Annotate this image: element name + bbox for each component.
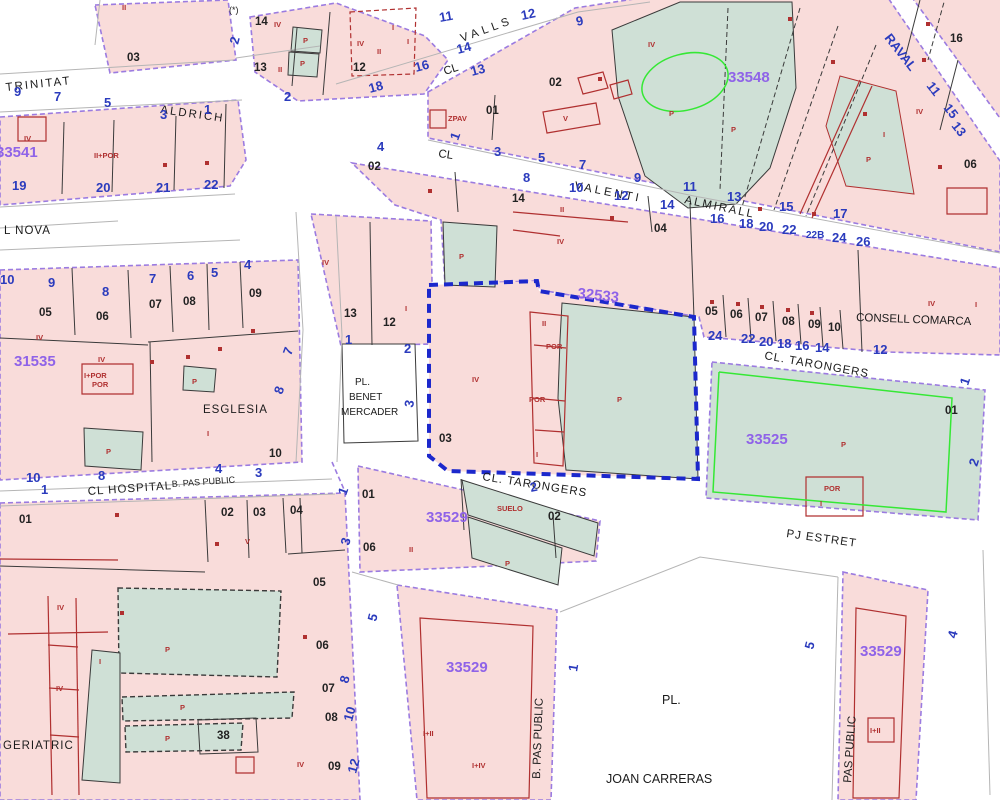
plaza-label: MERCADER	[341, 407, 398, 418]
building-code: POR	[546, 342, 563, 351]
house-number: 12	[873, 342, 887, 357]
house-number: 10	[569, 180, 583, 195]
building-code: I+POR	[84, 371, 107, 380]
house-number: 1	[204, 102, 211, 117]
building-mark	[251, 329, 255, 333]
building-code: SUELO	[497, 504, 523, 513]
house-number: 12	[614, 188, 628, 203]
block-03-trinitat[interactable]	[95, 0, 236, 73]
building-mark	[758, 207, 762, 211]
house-number: 11	[683, 179, 697, 194]
house-number: 22	[204, 177, 218, 192]
house-number: 7	[54, 89, 61, 104]
house-number: 15	[779, 199, 793, 214]
parcel-number: 07	[755, 312, 768, 324]
house-number: 1	[345, 332, 352, 347]
building-mark	[786, 308, 790, 312]
building-code: IV	[928, 299, 935, 308]
house-number: 4	[944, 628, 961, 640]
green-parcel[interactable]	[84, 428, 143, 470]
building-mark	[812, 212, 816, 216]
building-code: IV	[36, 333, 43, 342]
building-code: I+II	[423, 729, 434, 738]
house-number: 10	[0, 272, 14, 287]
parcel-number: 09	[328, 761, 341, 773]
building-mark	[736, 302, 740, 306]
parcel-number: 02	[368, 161, 381, 173]
building-code: P	[505, 559, 510, 568]
street-edge	[983, 550, 990, 795]
street-label-small: (*)	[229, 5, 239, 15]
house-number: 11	[438, 8, 454, 25]
house-number: 4	[377, 139, 385, 154]
street-edge	[352, 572, 398, 585]
green-parcel[interactable]	[183, 366, 216, 392]
house-number: 12	[520, 5, 537, 23]
building-code: II	[542, 319, 546, 328]
building-code: II	[278, 65, 282, 74]
parcel-number: 12	[383, 317, 396, 329]
house-number: 4	[215, 461, 223, 476]
parcel-number: 09	[808, 319, 821, 331]
block-number[interactable]: 33529	[446, 659, 488, 676]
building-code: IV	[56, 684, 63, 693]
parcel-number: 01	[945, 405, 958, 417]
parcel-number: 10	[269, 448, 282, 460]
building-code: POR	[92, 380, 109, 389]
building-mark	[810, 311, 814, 315]
cadastral-map: TRINITATALDRICHL NOVAVALLSCLCLVALENTIALM…	[0, 0, 1000, 800]
parcel-number: 04	[290, 505, 303, 517]
parcel-number: 02	[548, 511, 561, 523]
building-mark	[926, 22, 930, 26]
house-number: 16	[710, 211, 724, 226]
house-number: 18	[739, 216, 753, 231]
parcel-number: 04	[654, 223, 667, 235]
house-number: 17	[833, 206, 847, 221]
building-mark	[598, 77, 602, 81]
parcel-number: 01	[19, 514, 32, 526]
parcel-number: 06	[96, 311, 109, 323]
building-code: I	[405, 304, 407, 313]
house-number: 8	[98, 468, 105, 483]
house-number: 21	[156, 180, 170, 195]
house-number: 5	[538, 150, 545, 165]
house-number: 19	[12, 178, 26, 193]
house-number: 7	[579, 157, 586, 172]
building-code: I+IV	[472, 761, 486, 770]
building-code: IV	[357, 39, 364, 48]
parcel-number: 13	[254, 62, 267, 74]
house-number: 9	[14, 84, 21, 99]
house-number: 5	[801, 640, 817, 651]
building-mark	[863, 112, 867, 116]
plaza-label: PL.	[355, 377, 370, 388]
house-number: 8	[523, 170, 530, 185]
house-number: 4	[244, 257, 252, 272]
parcel-number: 16	[950, 33, 963, 45]
house-number: 22B	[806, 230, 824, 241]
building-mark	[428, 189, 432, 193]
building-code: P	[731, 125, 736, 134]
parcel-number: 02	[221, 507, 234, 519]
building-code: IV	[98, 355, 105, 364]
building-code: P	[165, 734, 170, 743]
house-number: 2	[284, 89, 291, 104]
house-number: 14	[660, 197, 675, 212]
house-number: 5	[364, 612, 380, 623]
building-mark	[788, 17, 792, 21]
building-code: IV	[322, 258, 329, 267]
building-code: P	[841, 440, 846, 449]
building-mark	[205, 161, 209, 165]
building-mark	[218, 347, 222, 351]
building-code: ZPAV	[448, 114, 467, 123]
parcel-number: 03	[127, 52, 140, 64]
street-label-small: B. PAS PUBLIC	[171, 475, 235, 489]
building-mark	[710, 300, 714, 304]
parcel-number: 03	[439, 433, 452, 445]
building-code: P	[459, 252, 464, 261]
building-code: IV	[916, 107, 923, 116]
building-code: I	[975, 300, 977, 309]
parcel-number: 07	[322, 683, 335, 695]
house-number: 2	[404, 341, 411, 356]
building-code: I	[207, 429, 209, 438]
building-code: IV	[274, 20, 281, 29]
house-number: 8	[102, 284, 109, 299]
building-code: I	[407, 37, 409, 46]
building-code: IV	[557, 237, 564, 246]
parcel-number: 38	[217, 730, 230, 742]
house-number: 1	[41, 482, 48, 497]
block-number[interactable]: 33529	[860, 643, 902, 660]
building-code: II	[560, 205, 564, 214]
house-number: 5	[104, 95, 111, 110]
building-code: I	[820, 499, 822, 508]
parcel-number: 14	[255, 16, 268, 28]
building-mark	[215, 542, 219, 546]
parcel-number: 05	[705, 306, 718, 318]
house-number: 18	[777, 336, 791, 351]
parcel-number: 12	[353, 62, 366, 74]
house-number: 22	[741, 331, 755, 346]
parcel-number: 03	[253, 507, 266, 519]
house-number: 24	[708, 328, 723, 343]
block-number[interactable]: 31535	[14, 353, 56, 370]
street-edge	[560, 557, 838, 612]
house-number: 24	[832, 230, 847, 245]
building-mark	[150, 360, 154, 364]
building-code: P	[617, 395, 622, 404]
house-number: 3	[160, 107, 167, 122]
parcel-number: 09	[249, 288, 262, 300]
parcel-number: 10	[828, 322, 841, 334]
building-mark	[831, 60, 835, 64]
parcel-number: 06	[363, 542, 376, 554]
house-number: 5	[211, 265, 218, 280]
parcel-number: 01	[362, 489, 375, 501]
building-code: II+POR	[94, 151, 119, 160]
parcel-number: 06	[964, 159, 977, 171]
street-label: CL	[438, 148, 455, 162]
house-number: 20	[759, 219, 773, 234]
building-code: I	[99, 657, 101, 666]
building-code: P	[165, 645, 170, 654]
building-code: IV	[297, 760, 304, 769]
house-number: 1	[565, 663, 581, 673]
building-mark	[303, 635, 307, 639]
house-number: 22	[782, 222, 796, 237]
house-number: 16	[795, 338, 809, 353]
parcel-number: 08	[782, 316, 795, 328]
building-mark	[186, 355, 190, 359]
building-code: P	[180, 703, 185, 712]
parcel-number: 14	[512, 193, 525, 205]
building-code: IV	[24, 134, 31, 143]
building-code: I	[536, 450, 538, 459]
parcel-number: 08	[183, 296, 196, 308]
building-code: P	[303, 36, 308, 45]
building-code: I+II	[870, 726, 881, 735]
green-parcel[interactable]	[443, 222, 497, 287]
house-number: 7	[149, 271, 156, 286]
parcel-number: 05	[39, 307, 52, 319]
street-edge	[0, 240, 240, 250]
building-code: I	[883, 130, 885, 139]
parcel-number: 08	[325, 712, 338, 724]
house-number: 20	[96, 180, 110, 195]
street-label: ESGLESIA	[203, 404, 268, 416]
green-parcel[interactable]	[118, 588, 281, 677]
parcel-number: 07	[149, 299, 162, 311]
green-parcel[interactable]	[122, 692, 294, 721]
building-code: V	[245, 537, 250, 546]
building-code: P	[106, 447, 111, 456]
house-number: 3	[494, 144, 501, 159]
building-mark	[760, 305, 764, 309]
building-code: II	[377, 47, 381, 56]
building-mark	[163, 163, 167, 167]
building-code: P	[300, 59, 305, 68]
building-code: II	[409, 545, 413, 554]
green-parcel-32533[interactable]	[558, 303, 698, 479]
house-number: 3	[255, 465, 262, 480]
block-number[interactable]: 33525	[746, 431, 788, 448]
parcel-number: 02	[549, 77, 562, 89]
plaza-label: BENET	[349, 392, 382, 403]
building-mark	[115, 513, 119, 517]
building-mark	[610, 216, 614, 220]
street-edge	[832, 577, 838, 800]
building-code: P	[866, 155, 871, 164]
house-number: 26	[856, 234, 870, 249]
parcel-number: 13	[344, 308, 357, 320]
street-label: PL.	[662, 693, 681, 707]
street-label: JOAN CARRERAS	[606, 772, 712, 786]
house-number: 6	[187, 268, 194, 283]
building-mark	[938, 165, 942, 169]
block-number[interactable]: 33548	[728, 69, 770, 86]
house-number: 12	[344, 757, 362, 775]
building-code: P	[669, 109, 674, 118]
parcel-number: 05	[313, 577, 326, 589]
parcel-number: 06	[730, 309, 743, 321]
house-number: 20	[759, 334, 773, 349]
house-number: 10	[26, 470, 40, 485]
building-code: II	[122, 3, 126, 12]
building-mark	[922, 58, 926, 62]
house-number: 13	[727, 189, 741, 204]
building-code: IV	[648, 40, 655, 49]
building-code: POR	[529, 395, 546, 404]
house-number: 1	[957, 375, 974, 387]
house-number: 9	[48, 275, 55, 290]
map-canvas[interactable]: TRINITATALDRICHL NOVAVALLSCLCLVALENTIALM…	[0, 0, 1000, 800]
building-code: I	[392, 23, 394, 32]
street-label: GERIATRIC	[3, 740, 74, 752]
parcel-number: 01	[486, 105, 499, 117]
street-label: L NOVA	[4, 225, 51, 237]
building-code: IV	[57, 603, 64, 612]
block-number[interactable]: 33529	[426, 509, 468, 526]
building-code: IV	[472, 375, 479, 384]
block-number[interactable]: 33541	[0, 144, 38, 161]
building-code: POR	[824, 484, 841, 493]
building-mark	[120, 611, 124, 615]
building-code: V	[563, 114, 568, 123]
house-number: 9	[634, 170, 641, 185]
parcel-number: 06	[316, 640, 329, 652]
building-code: P	[192, 377, 197, 386]
street-label: PJ ESTRET	[786, 528, 858, 550]
house-number: 14	[815, 340, 830, 355]
